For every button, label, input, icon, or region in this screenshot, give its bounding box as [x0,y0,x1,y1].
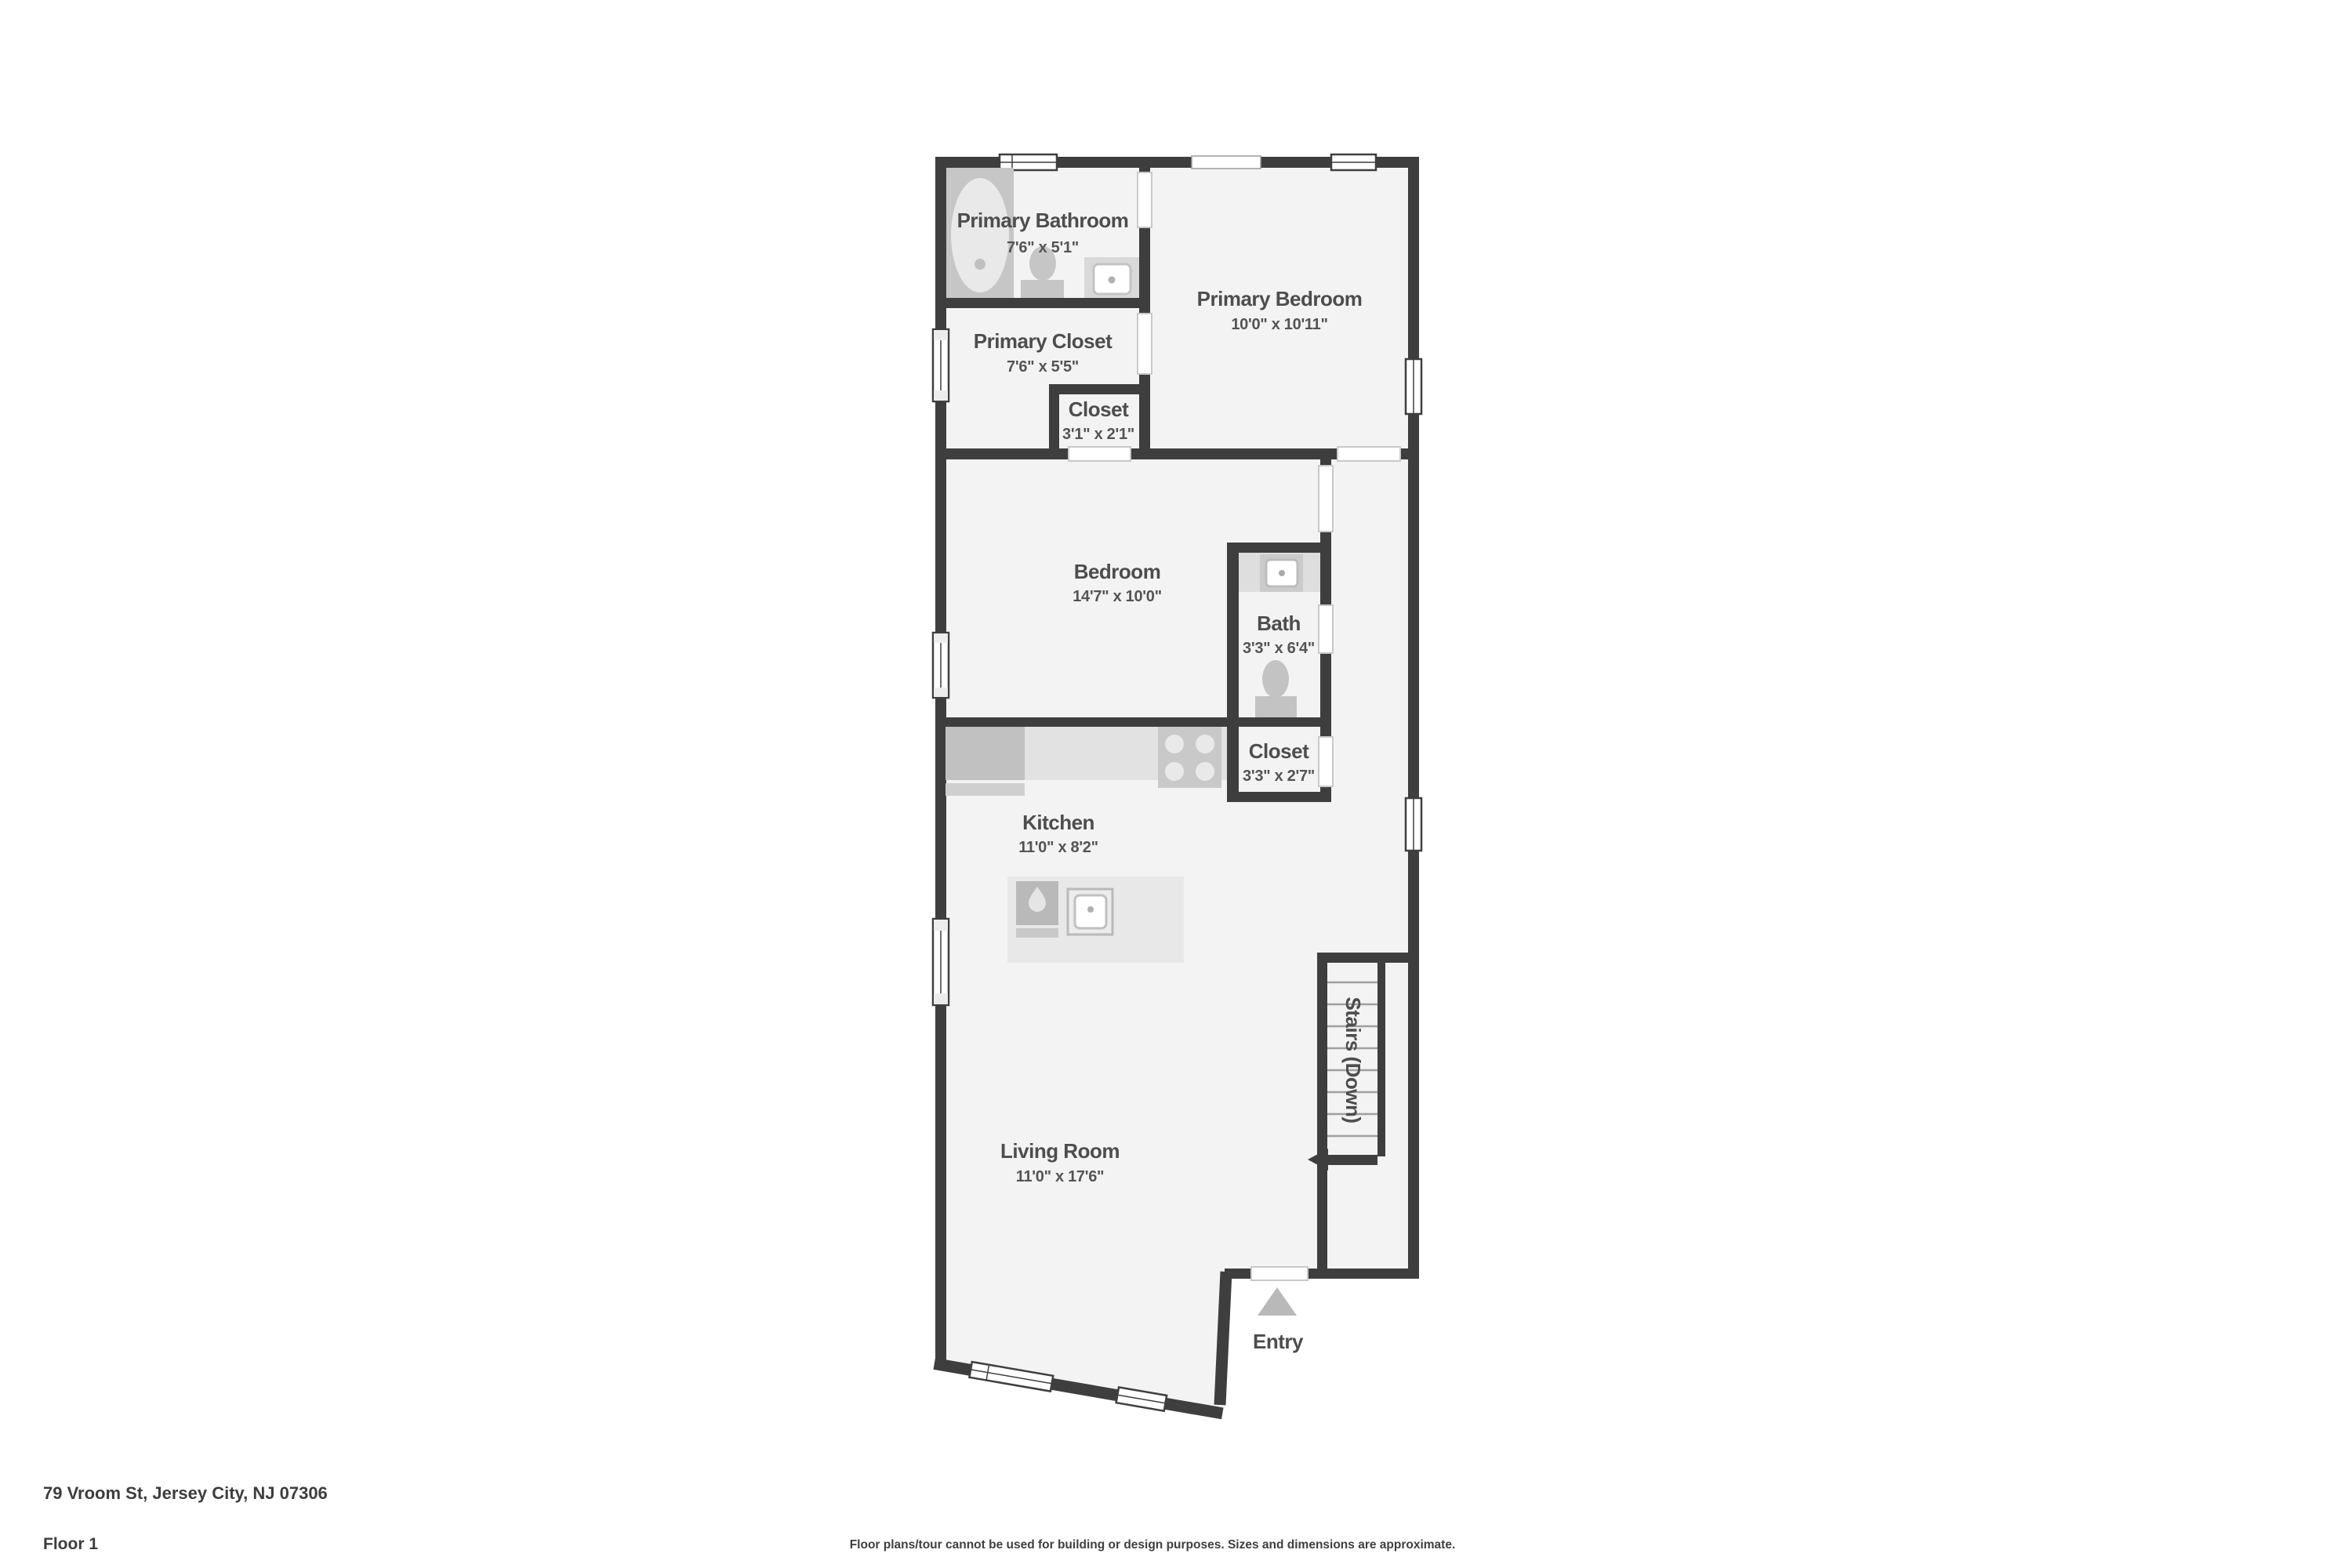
door-closet2 [1319,737,1333,786]
dims-primary-closet: 7'6" x 5'5" [1007,358,1079,376]
dims-bedroom: 14'7" x 10'0" [1073,588,1162,605]
wall-stairs-inner [1377,963,1385,1156]
wall-small-closet-top [1049,384,1147,394]
window-right-hall [1406,798,1421,851]
kitchen-dishwasher-strip [946,783,1025,796]
label-primary-closet: Primary Closet [974,329,1112,353]
label-entry: Entry [1253,1330,1304,1353]
dims-kitchen: 11'0" x 8'2" [1018,839,1098,856]
label-living-room: Living Room [1000,1139,1120,1163]
wall-bath-closet-divider [1227,717,1331,727]
bath-toilet-base-icon [1255,696,1297,717]
label-small-closet: Closet [1069,397,1129,421]
window-top-2 [1192,156,1261,169]
stove-icon [1158,727,1221,788]
door-primary-bathroom [1138,172,1152,227]
primary-sink-icon [1084,257,1139,298]
label-kitchen: Kitchen [1022,811,1094,834]
island-dishwasher-icon [1068,889,1112,935]
island-sink-icon [1016,881,1058,938]
window-left-living [933,919,949,1005]
label-bath: Bath [1257,612,1301,635]
wall-bath-left [1227,543,1239,802]
wall-stairs-left [1317,953,1327,1278]
bathtub-stem-icon [978,274,982,287]
footer-address: 79 Vroom St, Jersey City, NJ 07306 [43,1483,328,1504]
bathtub-drain-icon [975,259,985,270]
door-primary-bedroom [1338,447,1400,461]
wall-bedroom-bottom [935,717,1239,727]
primary-toilet-base-icon [1021,280,1064,298]
wall-bathroom-closet [946,298,1139,308]
label-closet2: Closet [1249,739,1309,763]
entry-arrow-icon [1258,1287,1297,1316]
door-small-closet [1069,447,1131,461]
footer-disclaimer: Floor plans/tour cannot be used for buil… [0,1538,2305,1552]
bath-sink-icon [1260,554,1303,592]
door-bedroom [1319,466,1333,532]
kitchen-sink-cabinet [946,727,1025,780]
wall-closet2-bottom [1227,792,1331,802]
window-left-bedroom [933,633,949,698]
floor-plan-page: Primary Bathroom 7'6" x 5'1" Primary Bed… [0,0,2352,1568]
bath-toilet-icon [1262,660,1289,698]
wall-bath-top [1227,543,1331,553]
wall-right [1408,157,1419,1278]
window-left-primary-closet [933,329,949,401]
dims-small-closet: 3'1" x 2'1" [1062,426,1134,443]
door-primary-closet [1138,314,1152,374]
stairs-direction-bar [1327,1155,1377,1165]
dims-living-room: 11'0" x 17'6" [1016,1168,1104,1185]
window-top-3 [1331,154,1376,170]
dims-primary-bedroom: 10'0" x 10'11" [1231,316,1327,333]
door-bath [1319,605,1333,653]
label-primary-bedroom: Primary Bedroom [1197,287,1363,310]
wall-stairs-top [1317,953,1419,963]
dims-closet2: 3'3" x 2'7" [1243,768,1315,785]
dims-bath: 3'3" x 6'4" [1243,640,1315,657]
wall-living-right-slanted [1220,1272,1226,1405]
dims-primary-bathroom: 7'6" x 5'1" [1007,239,1079,256]
floor-plan-canvas: Primary Bathroom 7'6" x 5'1" Primary Bed… [0,0,2352,1568]
label-primary-bathroom: Primary Bathroom [957,209,1129,232]
label-bedroom: Bedroom [1074,560,1161,583]
door-entry-opening [1251,1267,1308,1280]
window-right-primary-bedroom [1406,359,1421,414]
label-stairs: Stairs (Down) [1341,996,1365,1123]
